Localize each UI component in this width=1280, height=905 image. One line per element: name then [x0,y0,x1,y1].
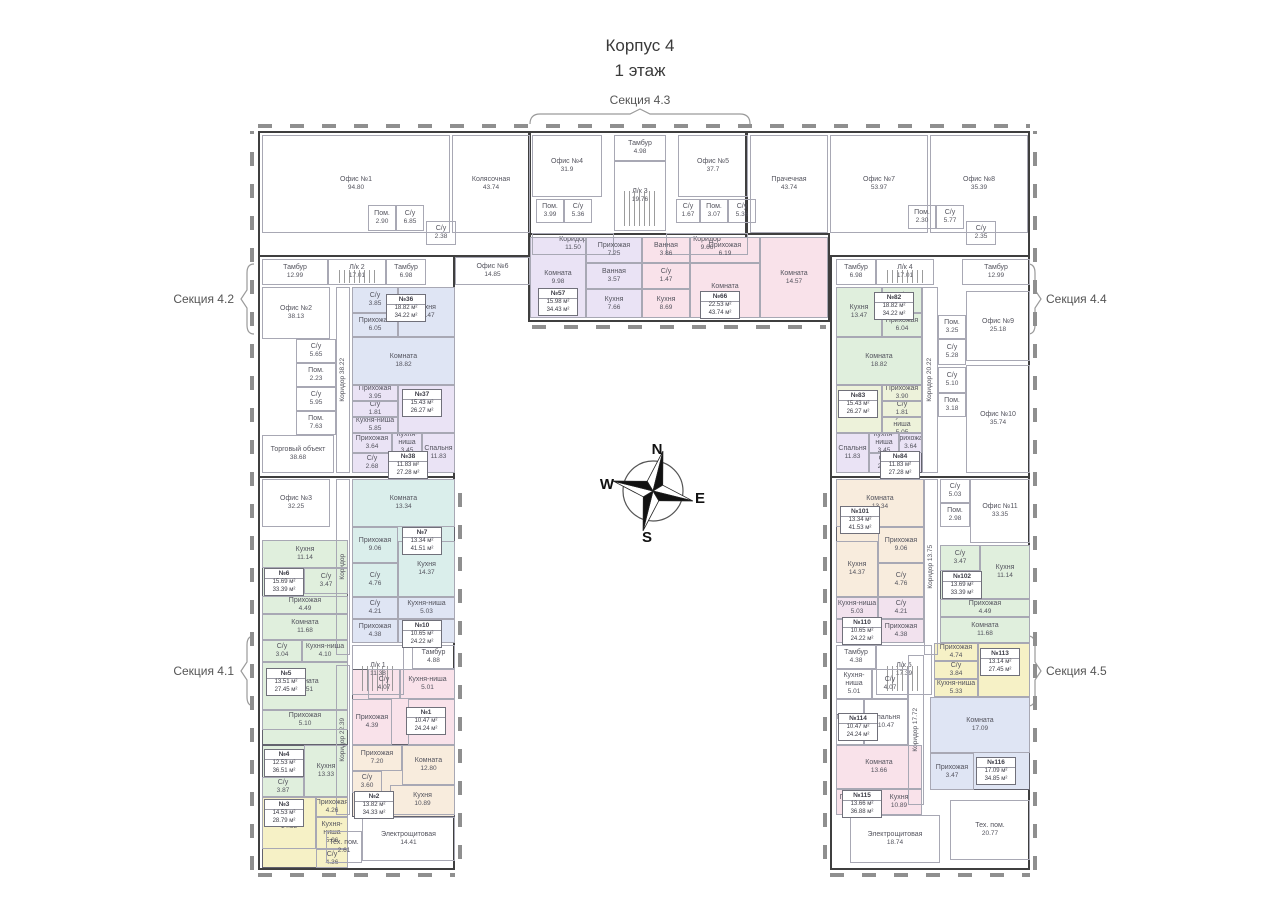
room-name: С/у [379,676,390,684]
room-name: С/у [321,573,332,581]
total-area: 34.43 м² [539,307,577,315]
total-area: 34.22 м² [875,311,913,319]
total-area: 33.39 м² [943,590,981,598]
room: С/у3.47 [304,568,348,594]
room: Прихожая4.49 [262,596,348,614]
apartment-number: №114 [839,715,877,724]
room: Пом.2.23 [296,363,336,387]
living-area: 18.82 м² [875,303,913,311]
room-area: 13.66 [871,767,887,774]
compass-north-label: N [652,441,663,458]
apartment-stamp: №3811.83 м²27.28 м² [388,451,428,479]
room: Пом.2.90 [368,205,396,231]
room: С/у2.68 [352,453,392,473]
room-area: 7.20 [371,758,384,765]
room-name: Офис №4 [551,158,583,166]
room-name: Комната [866,495,893,503]
total-area: 34.33 м² [355,810,393,818]
room: Прихожая7.25 [586,237,642,263]
apartment-stamp: №3715.43 м²26.27 м² [402,389,442,417]
room-area: 18.74 [887,839,903,846]
room-name: Офис №5 [697,158,729,166]
room-area: 38.68 [290,454,306,461]
room-name: Офис №8 [963,176,995,184]
living-area: 10.65 м² [403,631,441,639]
room: Кухня10.89 [390,785,455,815]
room-area: 10.89 [414,800,430,807]
apartment-number: №6 [265,570,303,579]
room-area: 94.80 [348,184,364,191]
apartment-number: №66 [701,293,739,302]
room: Тамбур4.38 [836,645,876,669]
room-name: С/у [370,572,381,580]
room-name: Комната [780,270,807,278]
room-area: 5.10 [946,380,959,387]
room-area: 7.66 [608,304,621,311]
room-label: Коридор 38.22 [339,358,346,402]
room-area: 18.82 [871,361,887,368]
living-area: 11.83 м² [389,462,427,470]
room-name: Прихожая [289,597,321,605]
room-name: Офис №1 [340,176,372,184]
apartment-number: №82 [875,294,913,303]
room-area: 11.68 [297,627,313,634]
room-name: Кухня-ниша [837,672,871,688]
total-area: 41.53 м² [841,525,879,533]
room: Кухня14.37 [836,541,878,597]
compass-rose: N S E W [598,436,708,546]
room: Тех. пом.2.61 [326,831,362,863]
room: Прихожая5.10 [262,710,348,730]
room: Комната14.57 [760,237,828,318]
room-name: Комната [415,757,442,765]
room: Ванная3.86 [642,237,690,263]
room-name: С/у [405,210,416,218]
apartment-number: №37 [403,391,441,400]
room-name: Прихожая [886,385,918,393]
room-area: 5.85 [369,425,382,432]
room-area: 43.74 [483,184,499,191]
room: Офис №238.13 [262,287,330,339]
room-name: Комната [865,759,892,767]
room-area: 14.41 [400,839,416,846]
room: С/у1.81 [882,401,922,417]
room-area: 3.47 [946,772,959,779]
room-name: С/у [951,662,962,670]
room-name: С/у [277,643,288,651]
room: Комната17.09 [930,697,1030,753]
room-area: 4.39 [366,722,379,729]
room-name: Кухня-ниша [838,600,876,608]
room-area: 14.57 [786,278,802,285]
room-area: 3.60 [361,782,374,789]
apartment-stamp: №412.53 м²36.51 м² [264,749,304,777]
room-name: Офис №10 [980,411,1016,419]
room: Кухня7.66 [586,289,642,318]
room-name: Электрощитовая [868,831,923,839]
room-name: Прихожая [885,537,917,545]
room-name: Прихожая [936,764,968,772]
room-area: 14.85 [484,271,500,278]
room: Спальня11.83 [836,433,869,473]
room-name: С/у [683,203,694,211]
room-name: С/у [947,372,958,380]
living-area: 17.09 м² [977,768,1015,776]
total-area: 26.27 м² [403,408,441,416]
apartment-number: №36 [387,296,425,305]
room-area: 35.39 [971,184,987,191]
apartment-number: №3 [265,801,303,810]
room-area: 5.03 [851,608,864,615]
living-area: 13.82 м² [355,802,393,810]
living-area: 22.53 м² [701,302,739,310]
stairs-icon [624,191,656,226]
room: Коридор 20.22 [922,287,938,473]
apartment-stamp: №5715.98 м²34.43 м² [538,288,578,316]
room-area: 5.36 [736,211,749,218]
room: Офис №431.9 [532,135,602,197]
room-name: Пом. [374,210,390,218]
room: Прихожая4.26 [316,797,348,817]
building-title: Корпус 4 [490,34,790,59]
room-name: Офис №6 [477,263,509,271]
room: С/у5.65 [296,339,336,363]
room: Комната12.80 [402,745,455,785]
room-name: Кухня-ниша [407,600,445,608]
room-area: 4.38 [369,631,382,638]
room: С/у4.21 [878,597,924,619]
living-area: 12.53 м² [265,760,303,768]
room: Пом.3.07 [700,199,728,223]
total-area: 24.24 м² [407,726,445,734]
room-area: 4.38 [895,631,908,638]
total-area: 27.45 м² [981,667,1019,675]
room-area: 2.90 [376,218,389,225]
room-area: 12.99 [287,272,303,279]
section-label-4-1: Секция 4.1 [150,664,234,678]
room-name: Тех. пом. [975,822,1004,830]
room: С/у3.60 [352,771,382,793]
living-area: 13.69 м² [943,582,981,590]
room: Комната18.82 [352,337,455,385]
windows-strip [458,479,462,859]
room: С/у3.04 [262,640,302,662]
room-name: Кухня [317,763,336,771]
room-name: Торговый объект [271,446,326,454]
room-name: Комната [390,353,417,361]
apartment-stamp: №11010.65 м²24.22 м² [842,617,882,645]
room-area: 3.95 [369,393,382,400]
room-name: Офис №9 [982,318,1014,326]
room-area: 1.47 [660,276,673,283]
living-area: 15.69 м² [265,579,303,587]
apartment-number: №110 [843,619,881,628]
room-area: 4.21 [369,608,382,615]
room-name: С/у [955,550,966,558]
room-name: Тамбур [283,264,307,272]
room: С/у5.77 [936,205,964,229]
room-area: 32.25 [288,503,304,510]
room: Кухня-ниша4.10 [302,640,348,662]
room-area: 4.21 [895,608,908,615]
room: Кухня-ниша5.85 [352,417,398,433]
room: Кухня-ниша5.05 [882,417,922,433]
room-name: С/у [885,676,896,684]
apartment-number: №4 [265,751,303,760]
room-name: Кухня-ниша [937,680,975,688]
apartment-number: №5 [267,670,305,679]
room: Кухня11.14 [980,545,1030,599]
room: Прихожая9.06 [352,527,398,563]
room: Комната11.68 [262,614,348,640]
room: Кухня-ниша5.03 [398,597,455,619]
room-name: Прихожая [359,537,391,545]
room-area: 10.89 [891,802,907,809]
room: Комната13.66 [836,745,922,789]
room-name: С/у [737,203,748,211]
room: Коридор 13.75 [924,479,938,655]
room-area: 3.85 [369,300,382,307]
room-area: 2.30 [916,217,929,224]
compass-west-label: W [600,476,615,493]
room-area: 11.83 [431,453,447,460]
room-name: С/у [367,455,378,463]
room-name: Прихожая [899,435,922,443]
room: Прачечная43.74 [750,135,828,233]
room-area: 3.90 [896,393,909,400]
room-name: С/у [573,203,584,211]
room-area: 18.82 [395,361,411,368]
living-area: 13.14 м² [981,659,1019,667]
room-name: Кухня [605,296,624,304]
total-area: 27.28 м² [389,470,427,478]
room-name: Спальня [424,445,452,453]
room-name: Офис №2 [280,305,312,313]
room: С/у6.85 [396,205,424,231]
apartment-number: №84 [881,453,919,462]
compass-east-label: E [695,490,705,507]
room: Прихожая9.06 [878,527,924,563]
room: Кухня10.89 [876,789,922,815]
room-name: Спальня [838,445,866,453]
room-area: 53.97 [871,184,887,191]
room-label: Коридор 13.75 [927,545,934,589]
room-name: Комната [966,717,993,725]
room-area: 5.36 [572,211,585,218]
total-area: 41.51 м² [403,546,441,554]
room: Прихожая3.64 [352,433,392,453]
room-name: Комната [711,283,738,291]
room: Кухня-ниша5.03 [836,597,878,619]
living-area: 10.47 м² [407,718,445,726]
room-area: 4.76 [895,580,908,587]
room: Прихожая3.64 [899,433,922,453]
room-area: 4.76 [369,580,382,587]
room-area: 11.14 [297,554,313,561]
section-label-4-5: Секция 4.5 [1046,664,1130,678]
room-area: 35.74 [990,419,1006,426]
room: Офис №925.18 [966,291,1030,361]
room-name: Пом. [706,203,722,211]
room: Кухня13.33 [304,745,348,797]
total-area: 34.85 м² [977,776,1015,784]
windows-strip [823,479,827,859]
room-name: Прихожая [356,435,388,443]
room: Коридор 38.22 [336,287,350,473]
room-name: Кухня [657,296,676,304]
room-area: 11.68 [977,630,993,637]
room-name: Кухня [890,794,909,802]
total-area: 28.79 м² [265,818,303,826]
room-name: Колясочная [472,176,510,184]
apartment-stamp: №10113.34 м²41.53 м² [840,506,880,534]
room: Прихожая7.20 [352,745,402,771]
room: Электрощитовая14.41 [362,817,455,861]
living-area: 10.65 м² [843,628,881,636]
room-area: 11.14 [997,572,1013,579]
room-name: С/у [278,779,289,787]
room-area: 4.26 [326,807,339,814]
apartment-stamp: №1010.65 м²24.22 м² [402,620,442,648]
apartment-stamp: №213.82 м²34.33 м² [354,791,394,819]
living-area: 13.34 м² [841,517,879,525]
apartment-number: №57 [539,290,577,299]
room-area: 7.63 [310,423,323,430]
room-area: 3.87 [277,787,290,794]
room-name: Комната [390,495,417,503]
floor-plan-canvas: Корпус 4 1 этаж Секция 4.3 Секция 4.2 Се… [0,0,1280,905]
room-name: Электрощитовая [381,831,436,839]
room-name: Офис №7 [863,176,895,184]
room-name: Комната [291,619,318,627]
room-area: 9.98 [552,278,565,285]
room: С/у1.81 [352,401,398,417]
room-area: 6.19 [719,250,732,257]
room-area: 3.64 [366,443,379,450]
room: Кухня-ниша3.45 [869,433,899,453]
apartment-stamp: №713.34 м²41.51 м² [402,527,442,555]
room-name: Кухня [996,564,1015,572]
room: Кухня-ниша5.01 [400,669,455,699]
room: Л/к 319.76 [614,161,666,231]
room-name: Прихожая [885,623,917,631]
room-name: Пом. [944,319,960,327]
room-name: С/у [945,209,956,217]
room: Кухня-ниша5.33 [934,679,978,697]
room-area: 4.38 [850,657,863,664]
room-name: Пом. [944,397,960,405]
living-area: 13.51 м² [267,679,305,687]
apartment-number: №83 [839,392,877,401]
room-area: 3.57 [608,276,621,283]
room-area: 13.47 [851,312,867,319]
section-label-4-4: Секция 4.4 [1046,292,1130,306]
room-area: 5.03 [420,608,433,615]
room-name: Прихожая [361,750,393,758]
room: С/у2.38 [426,221,456,245]
room-name: Пом. [542,203,558,211]
room-area: 14.37 [849,569,865,576]
room-name: Кухня [417,561,436,569]
room-name: Кухня [850,304,869,312]
room: Прихожая4.49 [940,599,1030,617]
room: Тамбур6.98 [836,259,876,285]
page-title: Корпус 4 1 этаж [490,34,790,83]
room-name: С/у [370,292,381,300]
room: Офис №1133.35 [970,479,1030,543]
room: С/у5.10 [938,367,966,393]
room-name: Кухня-ниша [408,676,446,684]
room-area: 3.47 [320,581,333,588]
room-area: 6.85 [404,218,417,225]
room: Тамбур6.98 [386,259,426,285]
room-area: 5.28 [946,352,959,359]
room: Офис №332.25 [262,479,330,527]
room: С/у4.07 [368,669,400,699]
room: С/у3.47 [940,545,980,571]
apartment-stamp: №6622.53 м²43.74 м² [700,291,740,319]
room-area: 5.95 [310,399,323,406]
windows-strip [258,873,455,877]
room-name: Прихожая [316,799,348,807]
windows-strip [258,124,1030,128]
apartment-number: №101 [841,508,879,517]
room-area: 38.13 [288,313,304,320]
room: Пом.3.18 [938,393,966,417]
room-area: 5.77 [944,217,957,224]
room: Офис №537.7 [678,135,748,197]
room-area: 4.49 [979,608,992,615]
room: С/у1.47 [642,263,690,289]
room-name: Комната [865,353,892,361]
room-name: Кухня-ниша [356,417,394,425]
room: Пом.3.99 [536,199,564,223]
apartment-stamp: №513.51 м²27.45 м² [266,668,306,696]
room-name: С/у [976,225,987,233]
wall-divider [830,476,1030,478]
room-name: Тех. пом. [329,839,358,847]
room: Электрощитовая18.74 [850,815,940,863]
room-area: 20.77 [982,830,998,837]
room-area: 33.35 [992,511,1008,518]
apartment-number: №113 [981,650,1019,659]
total-area: 43.74 м² [701,310,739,318]
room: Прихожая3.95 [352,385,398,401]
stairs-icon [887,270,923,282]
room: Комната18.82 [836,337,922,385]
room: Прихожая3.47 [930,753,974,790]
room-name: Тамбур [984,264,1008,272]
room-name: Тамбур [844,649,868,657]
room-area: 5.01 [848,688,861,695]
room-area: 12.99 [988,272,1004,279]
room-area: 17.09 [972,725,988,732]
room-area: 5.03 [949,491,962,498]
room-area: 3.64 [904,443,917,450]
room-area: 8.69 [660,304,673,311]
room: Тамбур4.88 [412,645,455,669]
living-area: 15.43 м² [839,401,877,409]
room: Торговый объект38.68 [262,435,334,473]
room: Пом.7.63 [296,411,336,435]
room-area: 5.10 [299,720,312,727]
apartment-stamp: №110.47 м²24.24 м² [406,707,446,735]
room: Кухня-ниша3.45 [392,433,422,453]
room-area: 6.98 [400,272,413,279]
living-area: 14.53 м² [265,810,303,818]
room: С/у5.36 [564,199,592,223]
room: Офис №614.85 [455,257,530,285]
